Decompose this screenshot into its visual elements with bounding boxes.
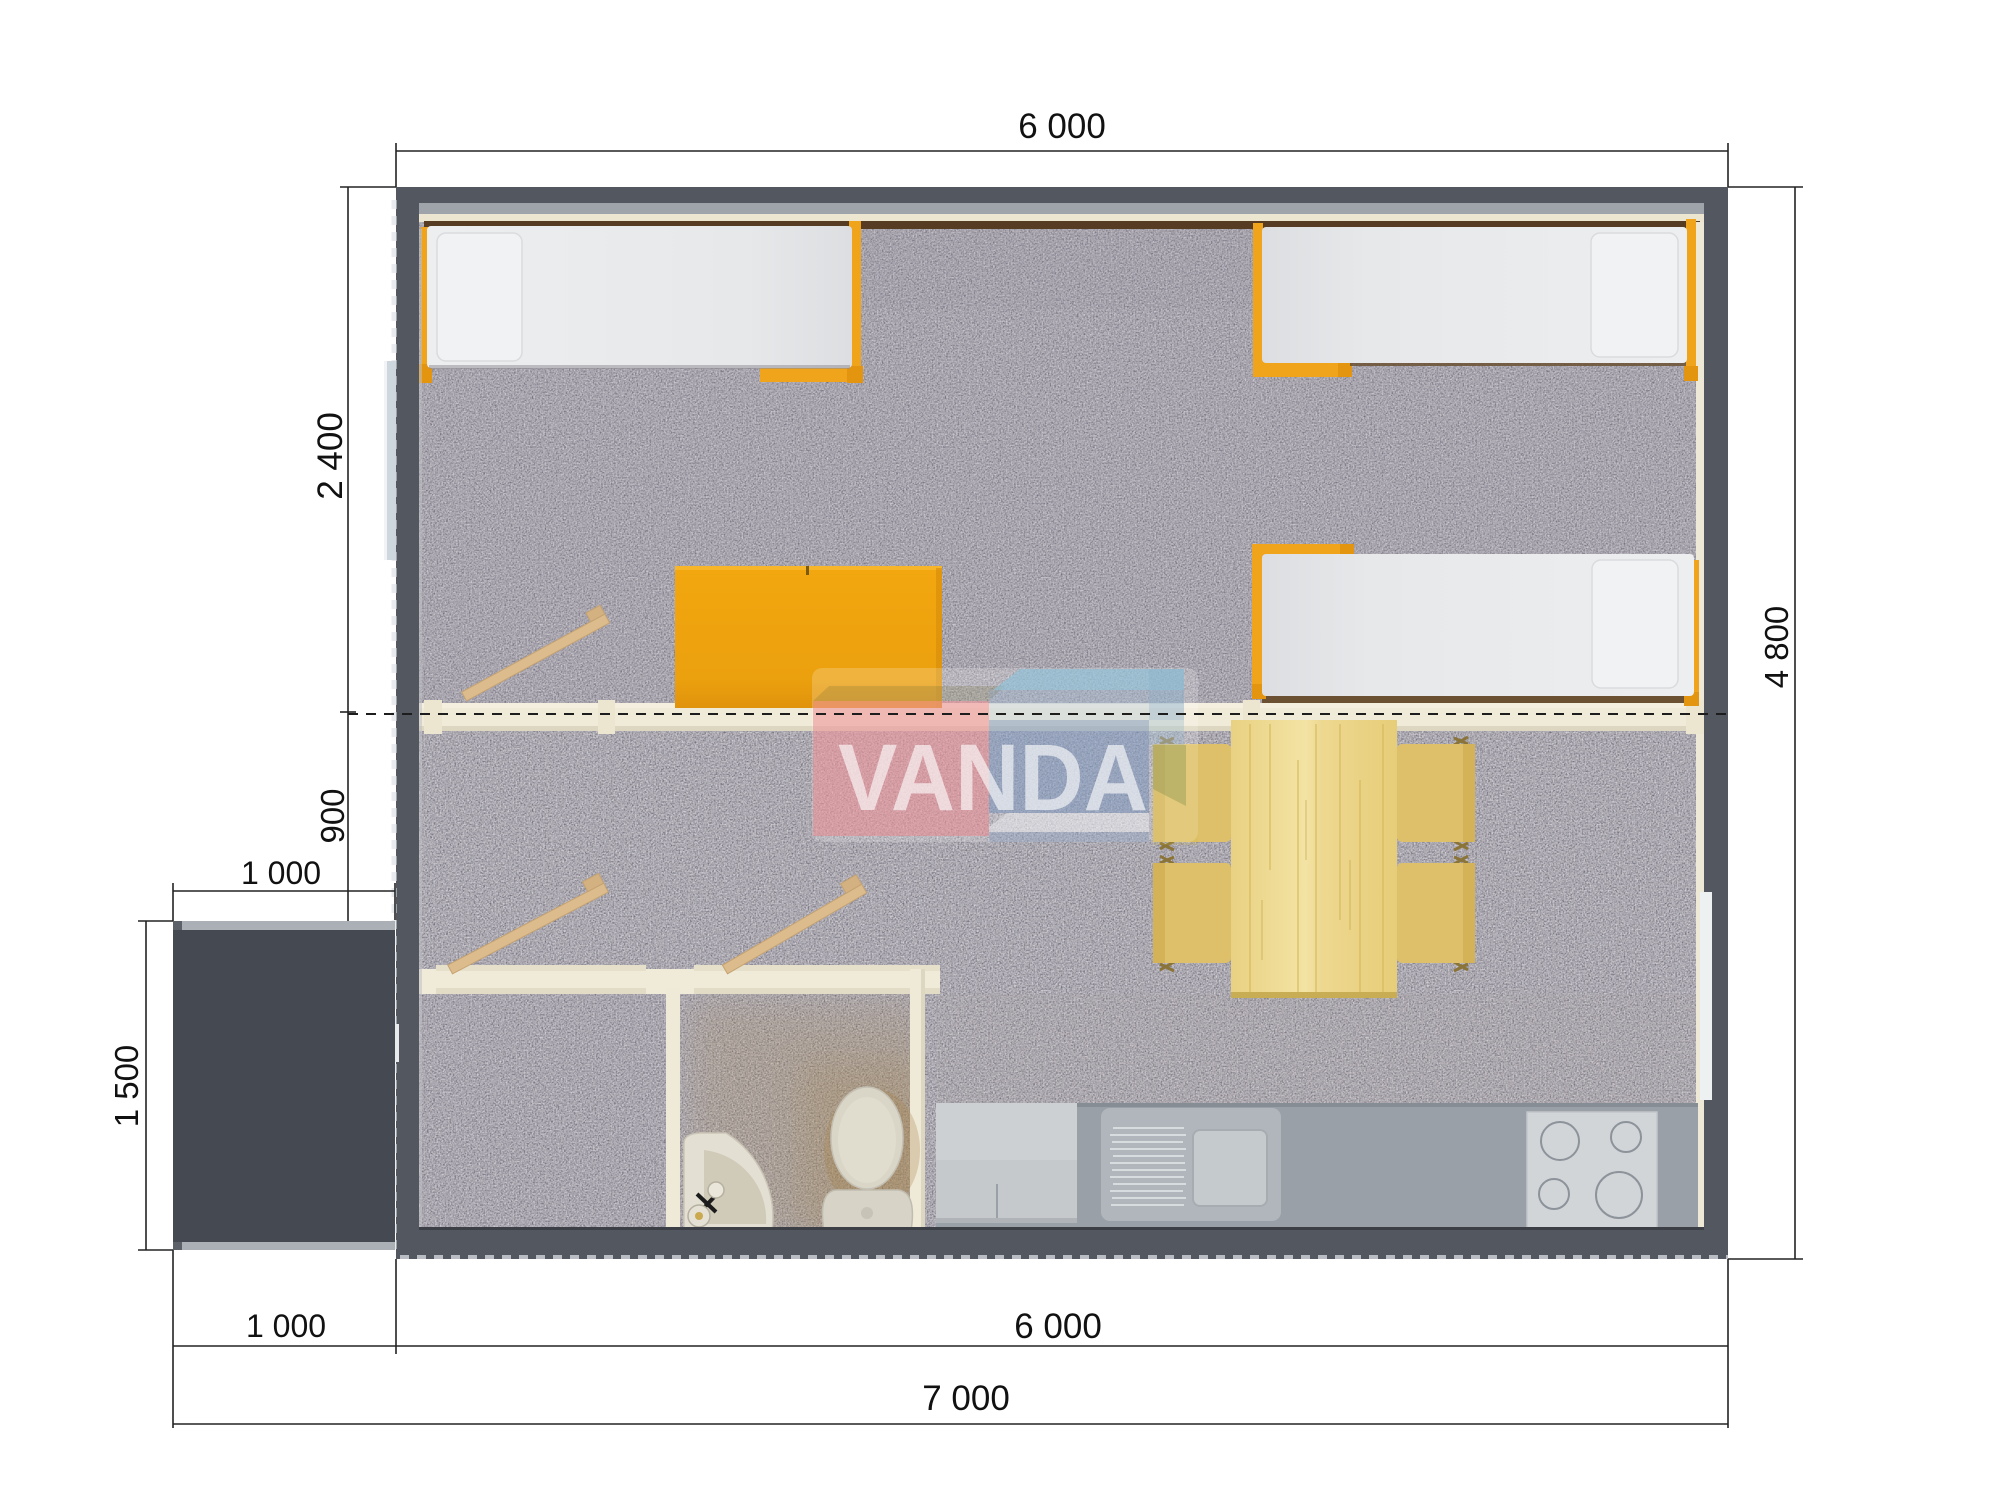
svg-text:1 000: 1 000 (241, 855, 321, 891)
svg-text:2 400: 2 400 (311, 412, 350, 500)
svg-text:900: 900 (314, 788, 351, 843)
svg-text:7 000: 7 000 (922, 1379, 1010, 1418)
svg-text:6 000: 6 000 (1018, 107, 1106, 146)
svg-text:VANDA: VANDA (838, 725, 1148, 831)
svg-text:1 500: 1 500 (108, 1045, 145, 1128)
svg-text:6 000: 6 000 (1014, 1307, 1102, 1346)
svg-text:1 000: 1 000 (246, 1308, 326, 1344)
svg-text:4 800: 4 800 (1758, 606, 1795, 689)
